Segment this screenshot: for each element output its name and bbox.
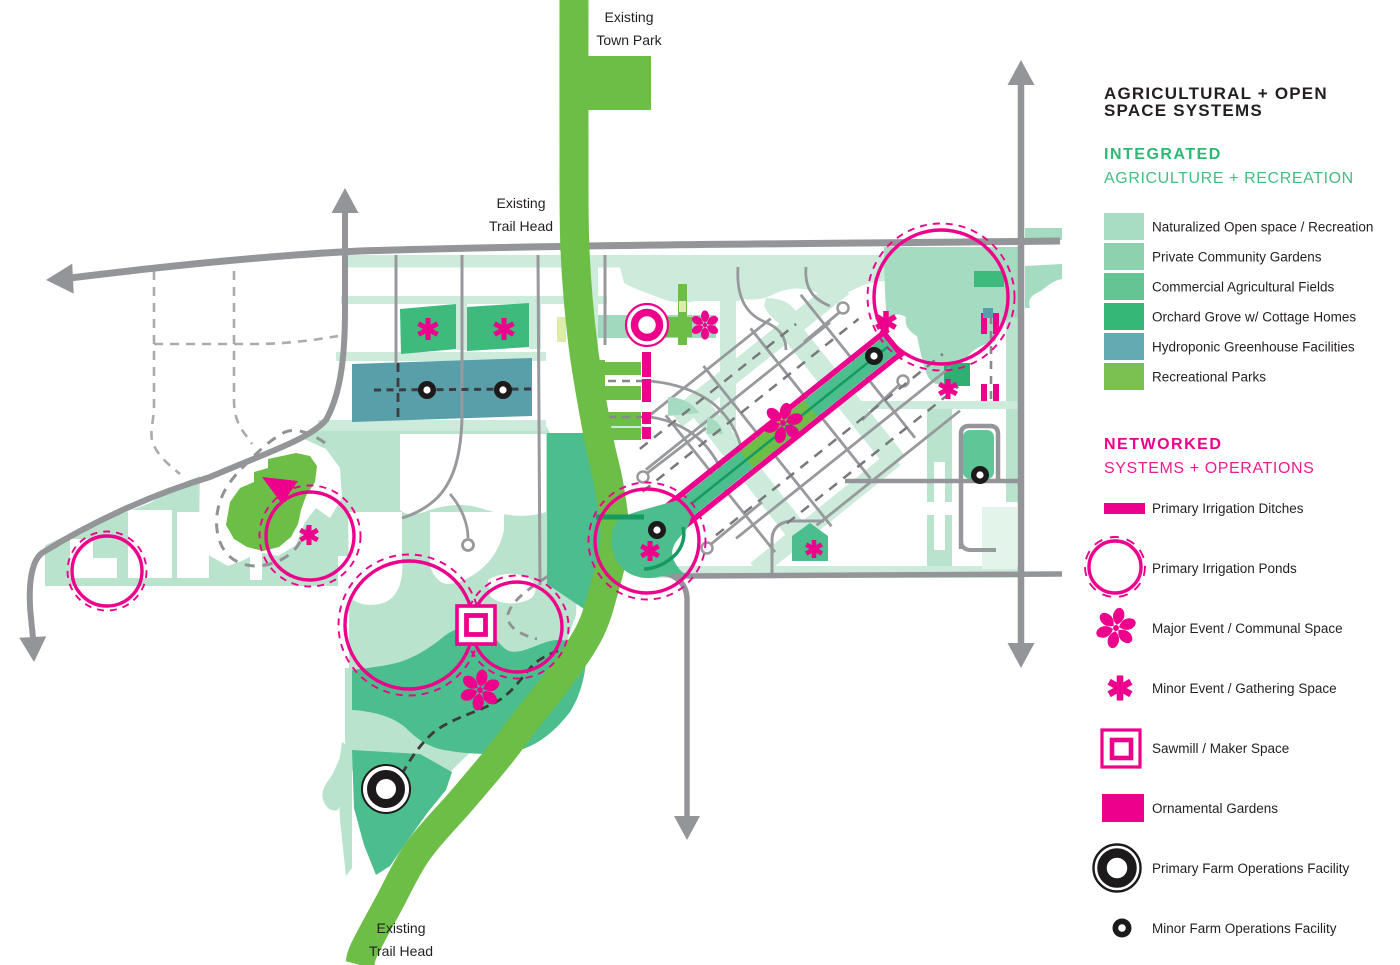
svg-text:AGRICULTURE + RECREATION: AGRICULTURE + RECREATION: [1104, 170, 1354, 187]
svg-text:Existing: Existing: [496, 195, 545, 211]
svg-text:INTEGRATED: INTEGRATED: [1104, 146, 1222, 163]
svg-text:Primary Irrigation Ponds: Primary Irrigation Ponds: [1152, 561, 1297, 576]
svg-text:Trail Head: Trail Head: [369, 943, 433, 959]
svg-text:Minor Event / Gathering Space: Minor Event / Gathering Space: [1152, 681, 1337, 696]
svg-text:Minor Farm Operations Facility: Minor Farm Operations Facility: [1152, 921, 1337, 936]
svg-text:Recreational Parks: Recreational Parks: [1152, 370, 1266, 385]
svg-text:Private Community Gardens: Private Community Gardens: [1152, 250, 1322, 265]
svg-text:Orchard Grove w/ Cottage Homes: Orchard Grove w/ Cottage Homes: [1152, 310, 1356, 325]
svg-text:SYSTEMS + OPERATIONS: SYSTEMS + OPERATIONS: [1104, 460, 1314, 477]
svg-text:SPACE SYSTEMS: SPACE SYSTEMS: [1104, 101, 1263, 120]
svg-text:Existing: Existing: [376, 920, 425, 936]
svg-text:Naturalized Open space / Recre: Naturalized Open space / Recreation: [1152, 220, 1373, 235]
svg-text:Sawmill / Maker Space: Sawmill / Maker Space: [1152, 741, 1289, 756]
svg-text:Major Event / Communal Space: Major Event / Communal Space: [1152, 621, 1343, 636]
svg-text:Primary Farm Operations Facili: Primary Farm Operations Facility: [1152, 861, 1350, 876]
svg-text:Hydroponic Greenhouse Faciliti: Hydroponic Greenhouse Facilities: [1152, 340, 1355, 355]
svg-text:Ornamental Gardens: Ornamental Gardens: [1152, 801, 1278, 816]
svg-text:Primary Irrigation Ditches: Primary Irrigation Ditches: [1152, 501, 1304, 516]
svg-text:Trail Head: Trail Head: [489, 218, 553, 234]
svg-text:Commercial Agricultural Fields: Commercial Agricultural Fields: [1152, 280, 1335, 295]
svg-text:Existing: Existing: [604, 9, 653, 25]
svg-text:Town Park: Town Park: [596, 32, 662, 48]
svg-text:NETWORKED: NETWORKED: [1104, 436, 1222, 453]
